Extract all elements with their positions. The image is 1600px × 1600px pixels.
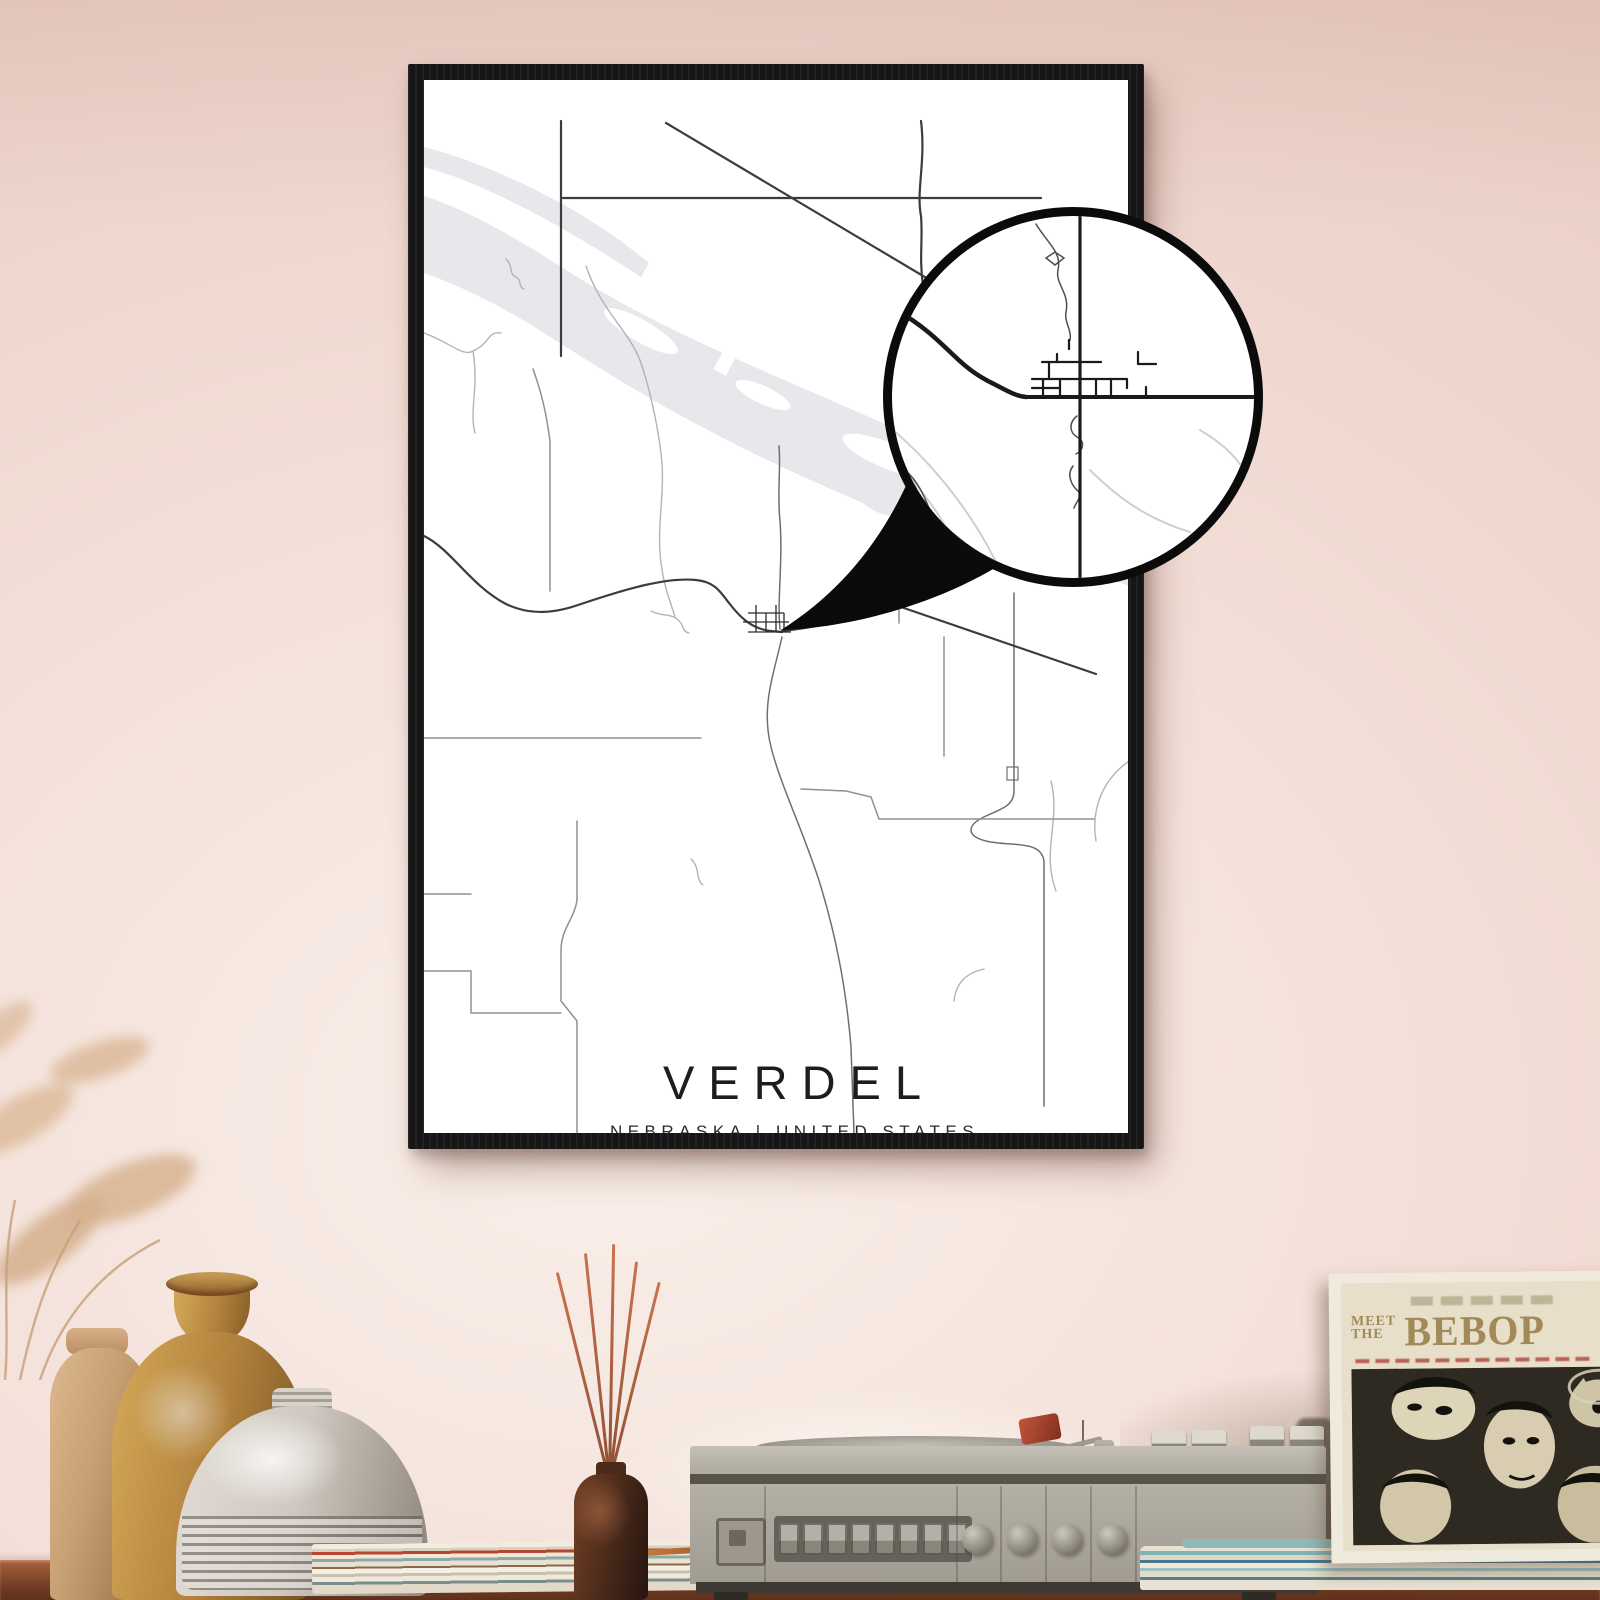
panel-seam xyxy=(1135,1486,1137,1582)
reed-stick xyxy=(608,1282,661,1483)
album-title-row: MEET THE BEBOP xyxy=(1351,1313,1545,1349)
volume-knob xyxy=(962,1524,992,1554)
town-map xyxy=(424,80,1128,1133)
preset-button xyxy=(827,1523,847,1555)
album-title: BEBOP xyxy=(1404,1312,1545,1349)
reed-stick xyxy=(556,1272,611,1482)
panel-seam xyxy=(764,1486,766,1582)
preset-button xyxy=(851,1523,871,1555)
reed-stick xyxy=(584,1253,611,1482)
preset-button xyxy=(875,1523,895,1555)
town-street-grid xyxy=(743,605,791,632)
preset-button xyxy=(899,1523,919,1555)
tonearm-cartridge xyxy=(1018,1413,1062,1446)
highway xyxy=(424,536,782,632)
power-button xyxy=(716,1518,766,1566)
pampas-plumes xyxy=(0,992,205,1300)
preset-button xyxy=(779,1523,799,1555)
panel-seam xyxy=(1045,1486,1047,1582)
ochre-vase-rim xyxy=(166,1272,258,1296)
treble-knob xyxy=(1052,1524,1082,1554)
album-faces-art xyxy=(1351,1366,1600,1545)
preset-button xyxy=(803,1523,823,1555)
player-foot xyxy=(714,1592,748,1600)
poster-caption: VERDEL NEBRASKA | UNITED STATES 42.8113°… xyxy=(440,1055,1128,1133)
tuning-knob xyxy=(1097,1524,1127,1554)
album-artwork xyxy=(1351,1366,1600,1545)
player-foot xyxy=(1242,1592,1276,1600)
reed-diffuser xyxy=(556,1256,666,1600)
room-scene: VERDEL NEBRASKA | UNITED STATES 42.8113°… xyxy=(0,0,1600,1600)
album-pretitle: MEET THE xyxy=(1351,1315,1397,1341)
poster-subtitle: NEBRASKA | UNITED STATES xyxy=(440,1122,1128,1133)
diffuser-bottle xyxy=(574,1474,648,1600)
album-stereo-text xyxy=(1411,1295,1561,1306)
album-pretitle-line2: THE xyxy=(1351,1328,1396,1341)
map-poster: VERDEL NEBRASKA | UNITED STATES 42.8113°… xyxy=(424,80,1128,1133)
player-slot xyxy=(690,1474,1326,1484)
album-sleeve: MEET THE BEBOP xyxy=(1328,1270,1600,1563)
preset-button-row xyxy=(774,1516,972,1562)
panel-seam xyxy=(1090,1486,1092,1582)
preset-button xyxy=(923,1523,943,1555)
bass-knob xyxy=(1007,1524,1037,1554)
album-cover: MEET THE BEBOP xyxy=(1341,1280,1600,1551)
poster-title: VERDEL xyxy=(440,1055,1128,1110)
panel-seam xyxy=(956,1486,958,1582)
album-subtitle-text xyxy=(1355,1357,1595,1364)
poster-frame: VERDEL NEBRASKA | UNITED STATES 42.8113°… xyxy=(408,64,1144,1149)
panel-seam xyxy=(1000,1486,1002,1582)
